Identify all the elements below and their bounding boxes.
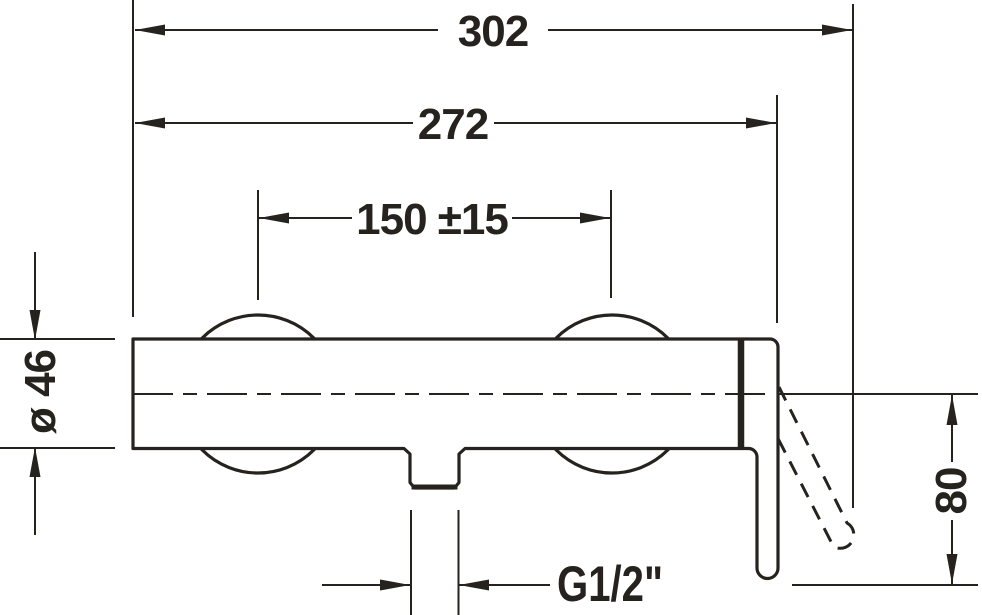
mixer-body-outline bbox=[133, 339, 778, 579]
arrow-projection-top bbox=[947, 395, 958, 425]
arrow-projection-bottom bbox=[947, 554, 958, 584]
arrow-overall-right bbox=[822, 25, 852, 36]
shower-mixer-dimension-drawing: 302 272 150 ±15 ø 46 80 G1/2" bbox=[0, 0, 982, 615]
dim-label-connection-spacing: 150 ±15 bbox=[356, 195, 508, 244]
dim-label-outlet-thread: G1/2" bbox=[557, 556, 663, 612]
arrow-body-right bbox=[746, 118, 776, 129]
arrow-overall-left bbox=[135, 25, 165, 36]
arrow-diameter-bottom bbox=[30, 447, 41, 477]
arrow-thread-left bbox=[380, 580, 410, 591]
arrows-and-labels: 302 272 150 ±15 ø 46 80 G1/2" bbox=[16, 7, 976, 612]
line-work bbox=[0, 0, 978, 615]
dim-label-body-diameter: ø 46 bbox=[16, 350, 65, 434]
handle-open-position-dashed bbox=[778, 387, 854, 548]
arrow-body-left bbox=[135, 118, 165, 129]
arrow-connection-right bbox=[580, 213, 610, 224]
dim-label-body-width: 272 bbox=[418, 100, 488, 149]
dim-label-overall-width: 302 bbox=[458, 7, 528, 56]
dim-label-handle-projection: 80 bbox=[927, 468, 976, 515]
arrow-thread-right bbox=[459, 580, 489, 591]
arrow-connection-left bbox=[259, 213, 289, 224]
arrow-diameter-top bbox=[30, 310, 41, 340]
